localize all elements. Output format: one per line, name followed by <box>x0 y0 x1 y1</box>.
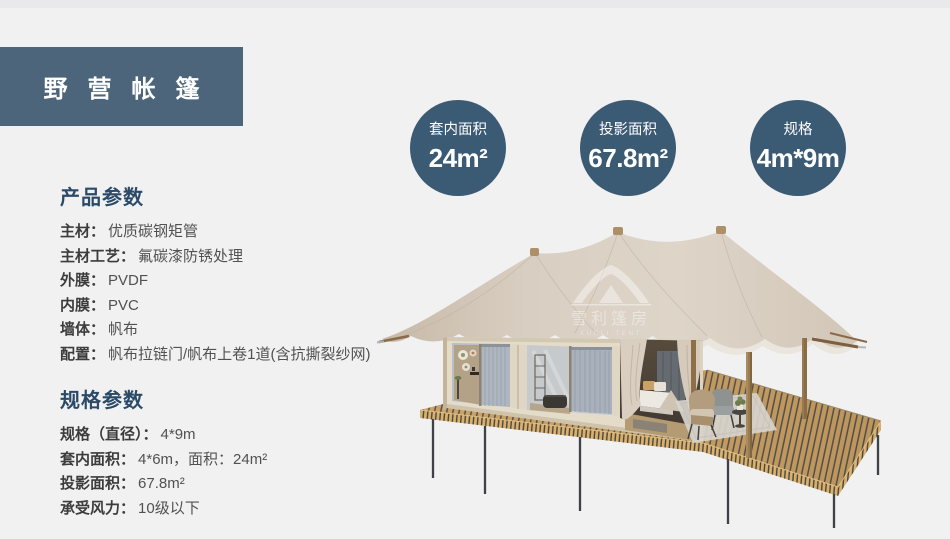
spec-row: 承受风力：10级以下 <box>60 497 267 522</box>
spec-row-value: 4*6m，面积：24m² <box>138 451 267 468</box>
size-params-section: 规格参数 规格（直径）：4*9m 套内面积：4*6m，面积：24m² 投影面积：… <box>60 384 267 521</box>
spec-row-value: 10级以下 <box>138 500 200 517</box>
product-params-section: 产品参数 主材：优质碳钢矩管 主材工艺：氟碳漆防锈处理 外膜：PVDF 内膜：P… <box>60 181 371 368</box>
spec-row: 墙体：帆布 <box>60 318 371 343</box>
spec-row: 主材：优质碳钢矩管 <box>60 220 371 245</box>
watermark-subtext: XUELI TENT <box>580 330 642 337</box>
spec-row-label: 承受风力： <box>60 500 135 517</box>
stat-label: 套内面积 <box>429 118 487 139</box>
spec-row-label: 套内面积： <box>60 451 135 468</box>
spec-row-label: 配置： <box>60 346 105 363</box>
stat-circle-projection-area: 投影面积 67.8m² <box>580 100 676 196</box>
tent-product-image: 雪利篷房 XUELI TENT <box>375 205 950 534</box>
tent-illustration: 雪利篷房 XUELI TENT <box>375 205 950 534</box>
spec-row: 内膜：PVC <box>60 294 371 319</box>
spec-row: 套内面积：4*6m，面积：24m² <box>60 448 267 473</box>
spec-row-label: 内膜： <box>60 297 105 314</box>
section-heading: 规格参数 <box>60 384 267 413</box>
spec-row-value: 67.8m² <box>138 475 185 492</box>
spec-row-value: 氟碳漆防锈处理 <box>138 248 243 265</box>
spec-row-label: 主材： <box>60 223 105 240</box>
stat-label: 投影面积 <box>599 118 657 139</box>
spec-row-label: 规格（直径）： <box>60 426 158 443</box>
stat-label: 规格 <box>784 118 813 139</box>
spec-row: 主材工艺：氟碳漆防锈处理 <box>60 245 371 270</box>
spec-row-value: PVDF <box>108 272 148 289</box>
spec-row-value: 优质碳钢矩管 <box>108 223 198 240</box>
spec-row: 配置：帆布拉链门/帆布上卷1道(含抗撕裂纱网) <box>60 343 371 368</box>
spec-row-label: 墙体： <box>60 321 105 338</box>
spec-row-value: 帆布 <box>108 321 138 338</box>
stat-circle-size: 规格 4m*9m <box>750 100 846 196</box>
page-title: 野营帐篷 <box>24 69 220 104</box>
spec-row-value: PVC <box>108 297 139 314</box>
spec-row-value: 4*9m <box>161 426 196 443</box>
glass-door-left <box>452 343 510 407</box>
spec-row-label: 外膜： <box>60 272 105 289</box>
section-heading: 产品参数 <box>60 181 371 210</box>
top-band <box>0 0 950 8</box>
stat-value: 67.8m² <box>588 143 667 174</box>
stat-circle-inner-area: 套内面积 24m² <box>410 100 506 196</box>
spec-row: 外膜：PVDF <box>60 269 371 294</box>
spec-row-label: 主材工艺： <box>60 248 135 265</box>
spec-row: 投影面积：67.8m² <box>60 472 267 497</box>
spec-row-label: 投影面积： <box>60 475 135 492</box>
glass-door-right <box>527 345 612 415</box>
watermark-text: 雪利篷房 <box>571 309 651 328</box>
spec-row-value: 帆布拉链门/帆布上卷1道(含抗撕裂纱网) <box>108 346 371 363</box>
product-title-banner: 野营帐篷 <box>0 47 243 126</box>
spec-row: 规格（直径）：4*9m <box>60 423 267 448</box>
stat-value: 4m*9m <box>757 143 840 174</box>
front-canopy-post <box>746 352 752 458</box>
stat-value: 24m² <box>429 143 488 174</box>
